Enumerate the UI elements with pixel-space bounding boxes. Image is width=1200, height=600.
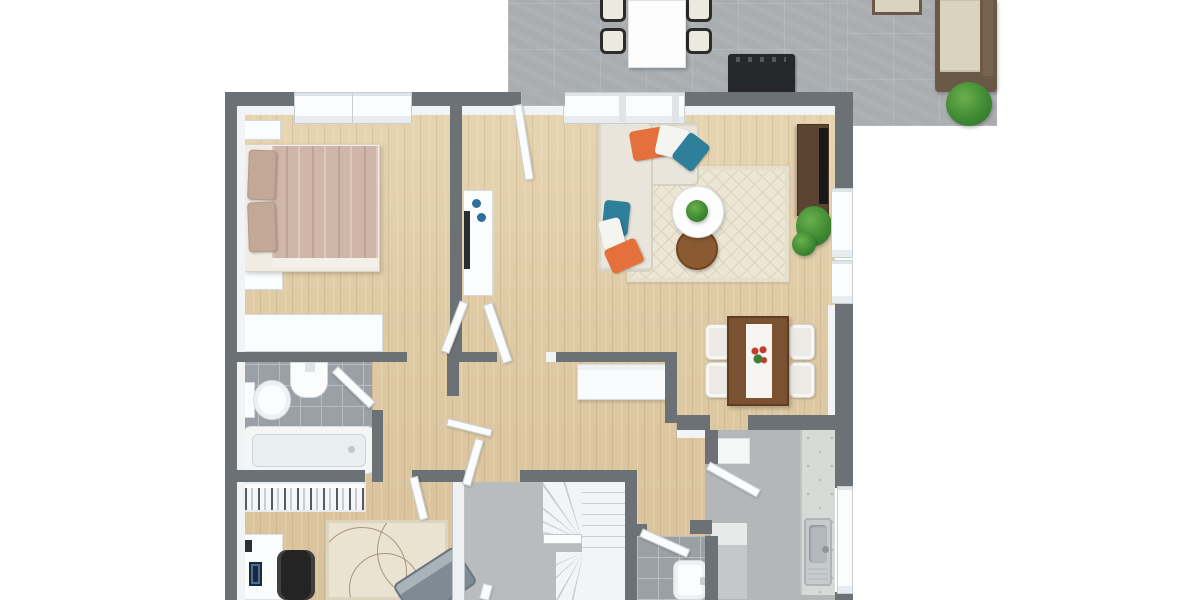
bedroom-dresser	[235, 314, 383, 352]
patio-chair	[600, 0, 626, 22]
bedroom-window	[352, 92, 412, 124]
stairs-winder-top	[543, 482, 582, 540]
wall-stair-top	[520, 470, 637, 482]
dining-table	[727, 316, 789, 406]
bed-sheet-edge	[272, 258, 378, 268]
grill	[728, 54, 795, 96]
bathtub	[243, 426, 375, 474]
wall-cap-dining-right	[828, 305, 835, 417]
desk-phone	[249, 562, 262, 586]
wall-living-hall	[556, 352, 677, 362]
patio-chair	[600, 28, 626, 54]
kitchen-sink	[804, 518, 832, 586]
wall-exterior-right	[835, 97, 853, 192]
wall-wc-kitchen	[705, 536, 718, 600]
window-mullion	[619, 95, 626, 122]
bathroom-sink	[290, 362, 328, 398]
grill-knobs	[736, 57, 786, 62]
patio-chair	[686, 28, 712, 54]
outdoor-sofa-cushions	[940, 0, 980, 72]
wall-cap-left-office	[237, 482, 245, 600]
kitchen-faucet	[822, 546, 829, 553]
dining-chair	[789, 324, 815, 360]
wall-dining-left	[665, 352, 677, 423]
wall-bathroom-right	[372, 410, 383, 482]
drainboard	[808, 568, 828, 582]
bed-pillow	[247, 202, 277, 253]
outdoor-sofa	[935, 0, 997, 92]
wall-wc-top	[690, 520, 712, 534]
bedroom-window	[294, 92, 354, 124]
tv-screen	[819, 128, 828, 204]
flower-centerpiece	[749, 342, 769, 368]
living-side-window	[831, 260, 853, 304]
sideboard-blue-decor	[472, 199, 481, 208]
outdoor-dining-table	[628, 0, 686, 68]
stairs-winder-bottom	[556, 552, 625, 600]
nightstand	[243, 120, 281, 140]
floor-plan-canvas	[0, 0, 1200, 600]
living-plant-leaves	[792, 232, 816, 256]
outdoor-ottoman	[872, 0, 922, 15]
coffee-table-plant	[686, 200, 708, 222]
wc-basin	[673, 560, 707, 600]
office-shelf	[230, 482, 366, 512]
bed-blanket	[272, 146, 378, 258]
wall-stair-right	[625, 482, 637, 600]
wall-office-top-right	[412, 470, 465, 482]
dining-chair	[789, 362, 815, 398]
kitchen-window	[837, 486, 853, 594]
wall-office-top	[225, 470, 365, 482]
stairs-inner-wall	[543, 534, 582, 544]
wall-hall-stub	[447, 362, 459, 396]
sink-faucet	[305, 363, 315, 372]
sink-basin	[809, 525, 827, 563]
living-window-triple	[563, 92, 685, 124]
front-door-opening	[521, 92, 565, 106]
outdoor-sofa-backrest	[983, 0, 993, 76]
wall-bedroom-bottom	[237, 352, 407, 362]
hall-sideboard	[463, 190, 493, 296]
living-side-window	[831, 188, 853, 258]
bed-pillow	[247, 150, 277, 201]
patio-chair	[686, 0, 712, 22]
patio-plant	[946, 82, 992, 126]
wall-bedroom-bottom-right	[447, 352, 497, 362]
wall-kitchen-left	[705, 430, 718, 464]
wall-office-entry	[452, 482, 465, 600]
bathtub-drain	[348, 446, 355, 453]
wall-cap-left	[237, 106, 245, 470]
sideboard-blue-decor	[477, 213, 486, 222]
hall-console	[577, 364, 669, 400]
wall-dining-bottom-left	[677, 415, 710, 430]
wall-dining-bottom-right	[748, 415, 835, 430]
wall-cap-stub	[546, 352, 556, 362]
office-chair	[277, 550, 315, 600]
toilet-bowl	[253, 380, 291, 420]
wall-exterior-right	[835, 302, 853, 488]
sideboard-dark-item	[464, 211, 470, 269]
wall-exterior-left	[225, 92, 237, 600]
window-mullion	[672, 95, 679, 122]
